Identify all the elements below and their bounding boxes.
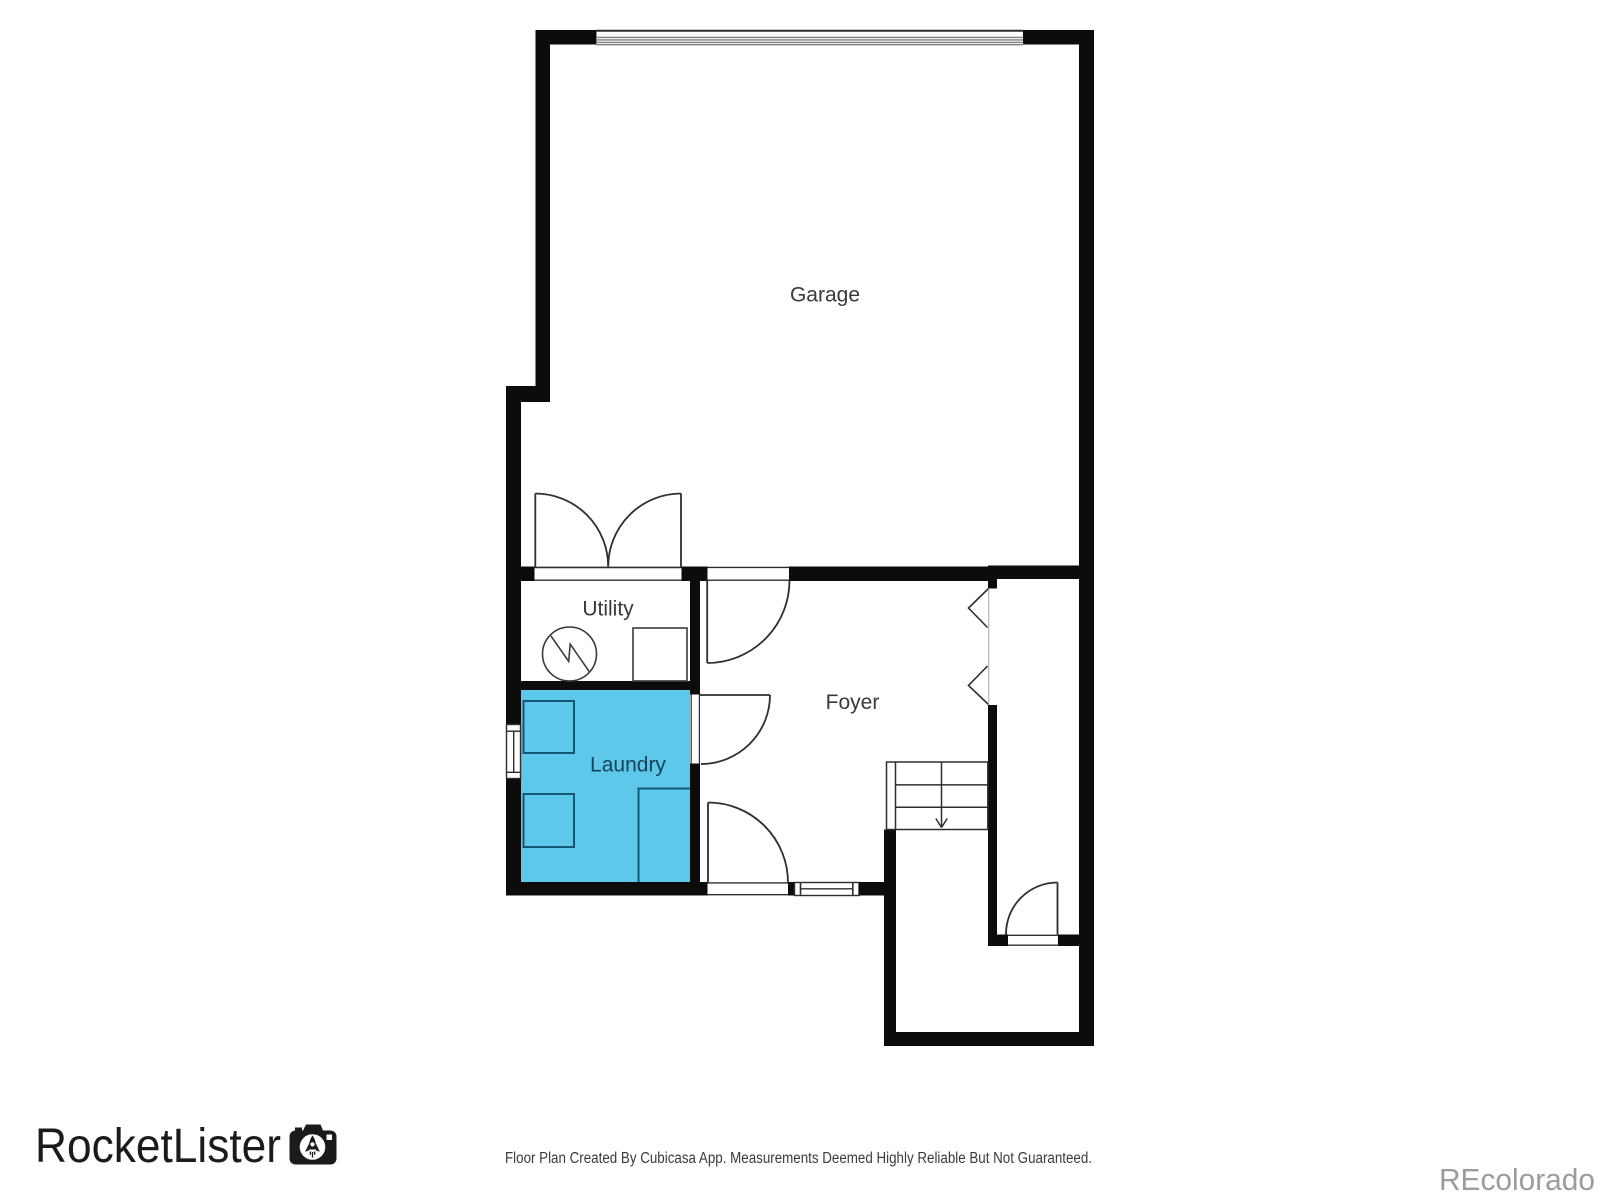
svg-text:Floor Plan Created By Cubicasa: Floor Plan Created By Cubicasa App. Meas… (505, 1150, 1092, 1167)
svg-text:Laundry: Laundry (590, 754, 666, 777)
svg-text:RocketLister: RocketLister (35, 1120, 281, 1173)
svg-text:Foyer: Foyer (826, 691, 880, 714)
svg-text:Utility: Utility (582, 598, 634, 621)
svg-text:Garage: Garage (790, 284, 860, 307)
svg-text:REcolorado: REcolorado (1439, 1162, 1595, 1197)
